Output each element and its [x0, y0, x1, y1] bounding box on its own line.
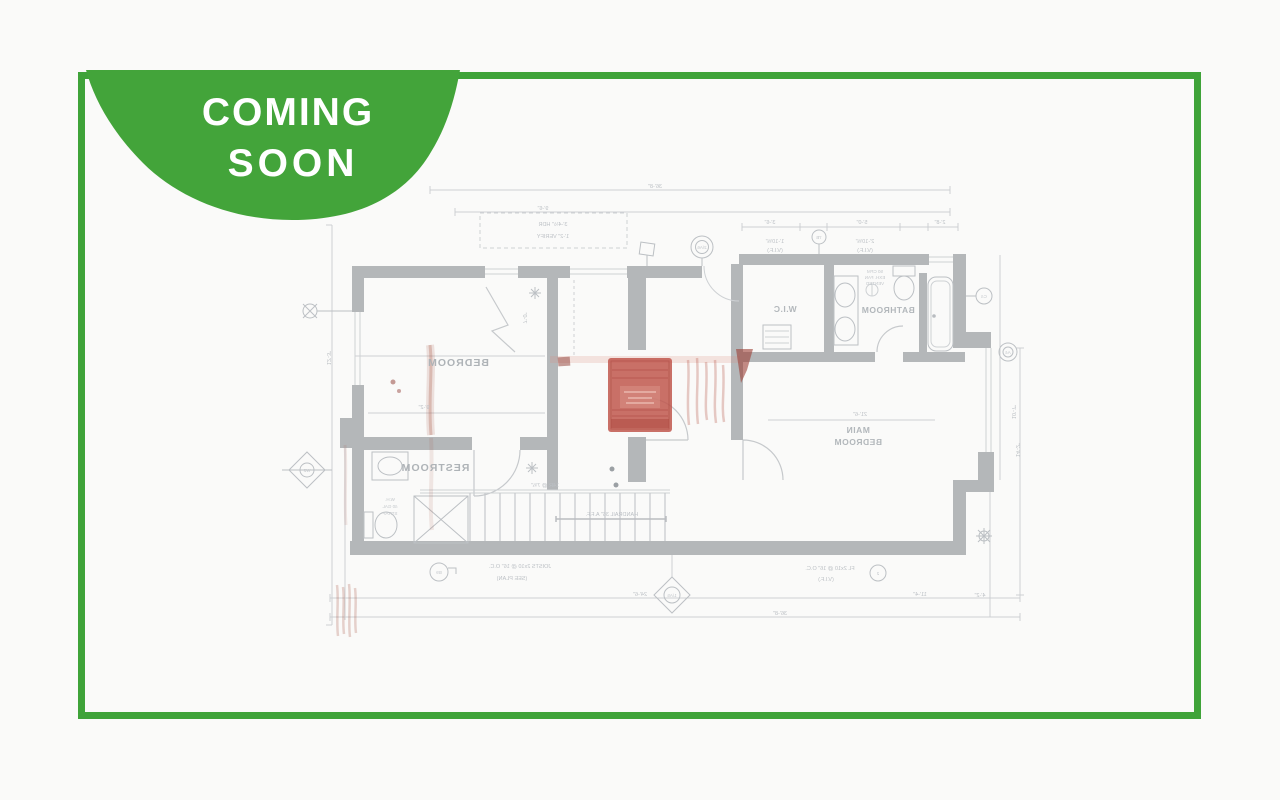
badge-line-1: COMING: [118, 88, 458, 139]
badge-line-2: SOON: [118, 139, 458, 190]
badge-text: COMING SOON: [118, 88, 458, 189]
